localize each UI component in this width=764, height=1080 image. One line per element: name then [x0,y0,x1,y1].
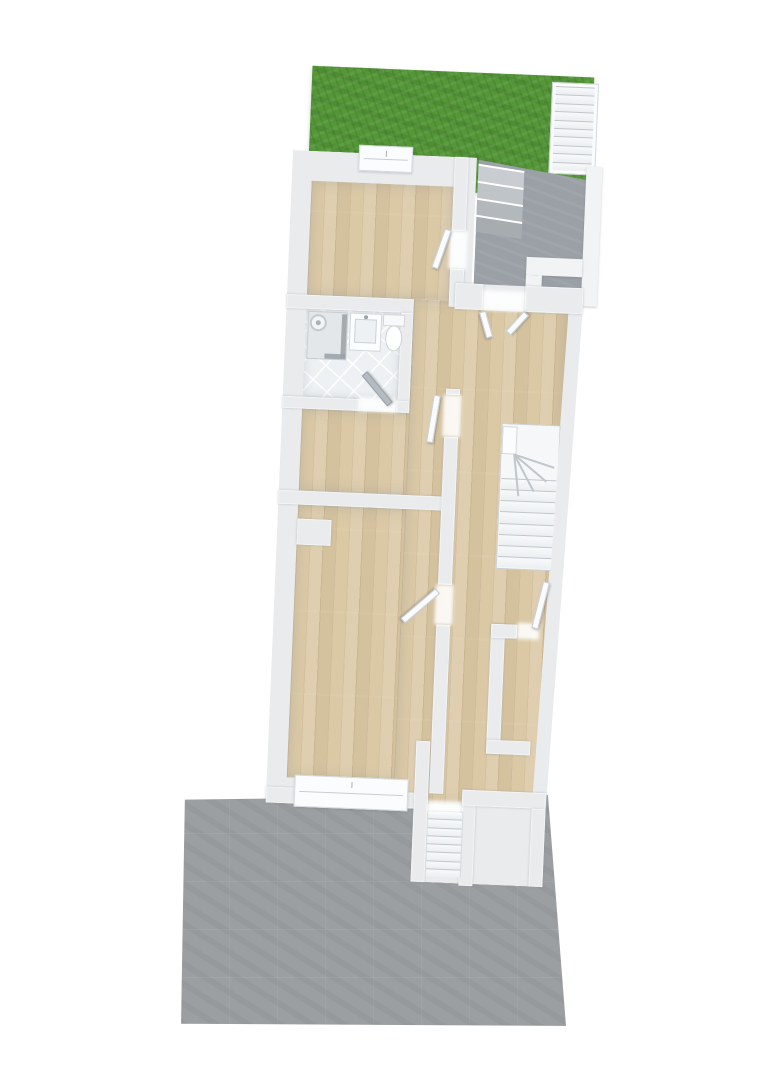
chimney-breast [296,519,331,546]
shower-glass-return [324,353,345,359]
window-bottom-handle [351,782,352,788]
top-room-floor [307,181,454,301]
winder-straight-flight [498,478,557,569]
front-door-threshold [482,290,525,312]
wall-smallroom-top [491,624,518,639]
middleroom-door-threshold [442,395,462,438]
winder-newel-post [501,426,517,455]
window-top-glazing-line [364,158,408,161]
sink-basin [354,319,377,344]
wall-entry-left [454,283,483,310]
porch-wall-top [526,257,583,277]
window-top-sill [358,145,413,173]
toproom-door-threshold [448,231,468,270]
wall-smallroom-bottom [486,740,531,756]
garden-staircase [549,83,598,175]
wall-entry-right [524,286,583,314]
window-bottom-glazing-line [299,791,403,796]
window-bottom-sill [294,775,409,812]
vanity-sink [349,313,383,352]
wall-bathroom-bottom-right [396,401,409,414]
courtyard-steps [476,164,525,239]
exterior-staircase [425,810,464,877]
floor-plan-scene [0,0,764,1080]
window-top-handle [386,151,387,157]
winder-staircase [496,423,561,571]
stairwell-exit-threshold [427,800,461,813]
